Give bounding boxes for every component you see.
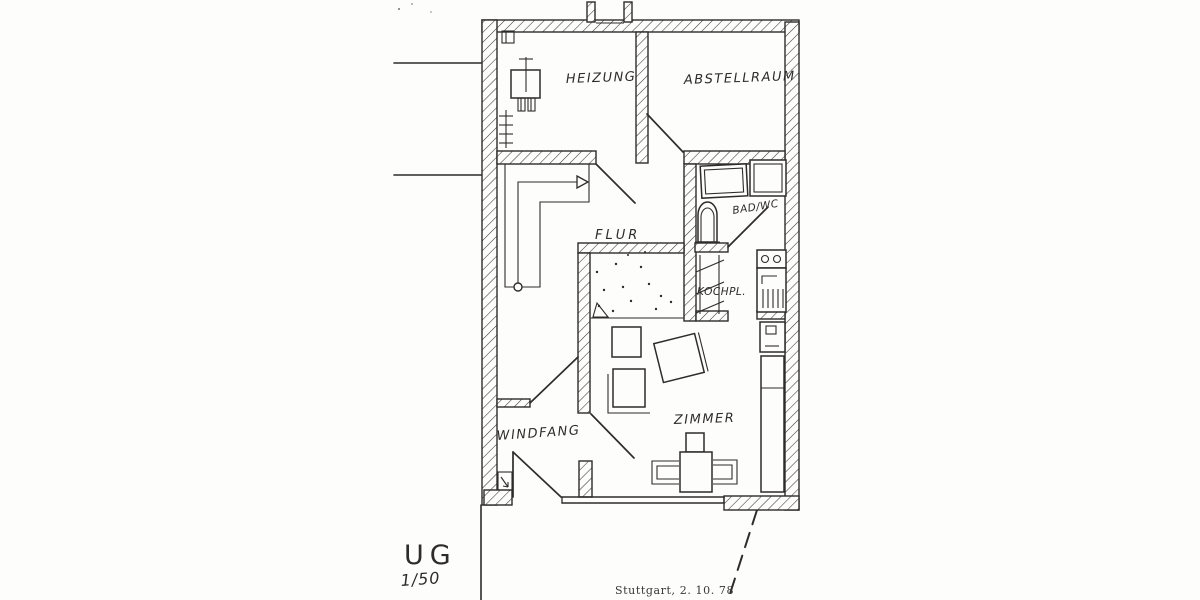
wall-windfang-top xyxy=(497,399,530,407)
window-band xyxy=(562,497,724,503)
armchair-2-icon xyxy=(608,369,650,413)
wall-heizung-bottom xyxy=(497,151,596,164)
stair-start-circle xyxy=(514,283,522,291)
door-heizung xyxy=(596,164,635,203)
scale-label: 1/50 xyxy=(400,568,441,590)
label-zimmer: ZIMMER xyxy=(673,411,736,428)
armchair-1-icon xyxy=(612,327,641,357)
floor-dots xyxy=(596,251,672,312)
drain-symbol xyxy=(498,472,512,490)
vent-pipe-symbol xyxy=(499,110,513,148)
wall-kochnische-bottom xyxy=(696,311,728,321)
sink-unit-icon xyxy=(757,250,786,268)
floor-level-label: UG xyxy=(404,540,457,571)
wc-toilet-icon xyxy=(695,202,720,242)
dotted-floor-area xyxy=(590,251,684,318)
dining-set xyxy=(652,433,737,492)
kochnische-symbol xyxy=(696,255,724,314)
door-entrance xyxy=(513,452,561,497)
place-date-annotation: Stuttgart, 2. 10. 78 xyxy=(615,584,734,597)
label-windfang: WINDFANG xyxy=(496,423,581,444)
base-cabinet-icon xyxy=(760,322,785,352)
wall-bad-kochnische-left xyxy=(684,164,696,321)
chair-top-icon xyxy=(686,433,704,452)
dining-table-icon xyxy=(680,452,712,492)
wall-left xyxy=(482,20,497,505)
chair-right-icon xyxy=(713,460,737,484)
label-bad-wc: BAD/WC xyxy=(732,198,780,217)
washbasin-icon xyxy=(700,164,748,198)
side-table-icon xyxy=(654,333,708,383)
wardrobe-icon xyxy=(761,356,784,492)
wall-heizung-abstellraum xyxy=(636,32,648,163)
wall-top xyxy=(482,20,799,32)
floor-plan-svg: HEIZUNG ABSTELLRAUM FLUR BAD/WC KOCHPL. … xyxy=(0,0,1200,600)
wall-flur-zimmer-stub xyxy=(578,253,590,413)
downpipe-symbol xyxy=(502,31,514,43)
corner-triangle-symbol xyxy=(593,303,608,317)
stair-walk-line xyxy=(518,182,578,287)
scanned-floor-plan-page: HEIZUNG ABSTELLRAUM FLUR BAD/WC KOCHPL. … xyxy=(0,0,1200,600)
stove-unit-icon xyxy=(757,268,786,312)
site-reference-lines xyxy=(394,63,757,600)
wall-right xyxy=(785,22,799,510)
zimmer-furniture xyxy=(608,327,737,492)
wall-flur-bottom xyxy=(578,243,684,253)
scan-noise xyxy=(398,3,432,13)
chair-left-icon xyxy=(652,461,679,484)
wall-bad-bottom xyxy=(695,243,728,252)
sheet-annotations: UG 1/50 Stuttgart, 2. 10. 78 xyxy=(400,540,734,597)
staircase xyxy=(505,164,589,291)
kitchen-units xyxy=(757,250,786,492)
label-heizung: HEIZUNG xyxy=(566,70,637,87)
shower-icon xyxy=(750,160,786,196)
door-flur-windfang xyxy=(530,357,578,403)
wall-bottom-right xyxy=(724,496,799,510)
label-flur: FLUR xyxy=(595,228,640,243)
wall-bottom-left xyxy=(484,490,512,505)
stair-direction-arrow-icon xyxy=(577,176,588,188)
boiler-symbol xyxy=(511,57,540,111)
label-kochnische: KOCHPL. xyxy=(697,286,746,298)
door-abstellraum xyxy=(647,114,683,152)
label-abstellraum: ABSTELLRAUM xyxy=(683,69,796,88)
door-zimmer xyxy=(591,414,634,458)
wall-zimmer-door-stub xyxy=(579,461,592,497)
